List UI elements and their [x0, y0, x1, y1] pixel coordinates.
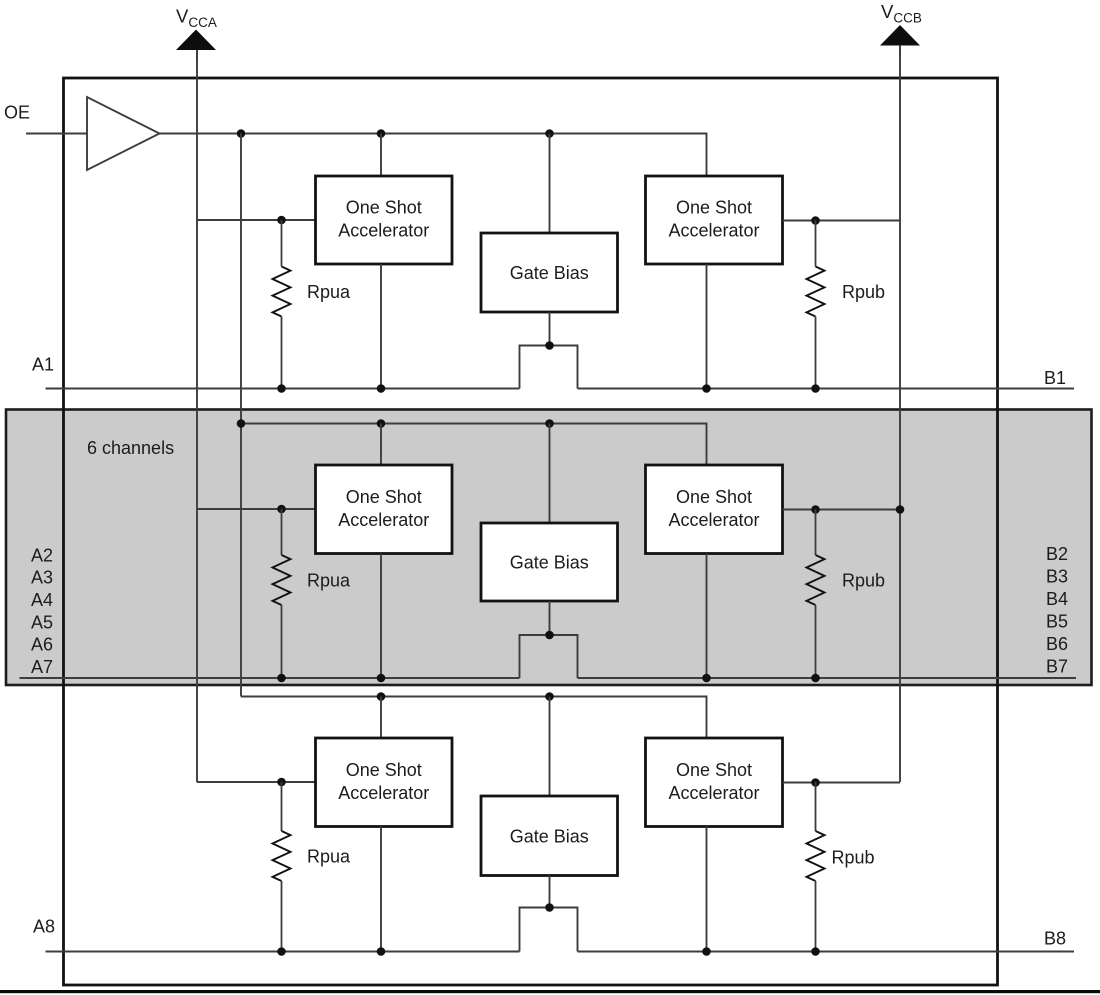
- svg-text:A8: A8: [33, 917, 55, 937]
- svg-text:A6: A6: [31, 635, 53, 655]
- svg-text:B6: B6: [1046, 634, 1068, 654]
- svg-text:B2: B2: [1046, 544, 1068, 564]
- svg-text:Accelerator: Accelerator: [338, 510, 429, 530]
- svg-text:Accelerator: Accelerator: [668, 783, 759, 803]
- svg-text:Gate Bias: Gate Bias: [510, 826, 589, 846]
- svg-text:Accelerator: Accelerator: [668, 221, 759, 241]
- svg-text:Rpub: Rpub: [842, 571, 885, 591]
- svg-text:A2: A2: [31, 546, 53, 566]
- svg-text:One Shot: One Shot: [676, 198, 752, 218]
- svg-text:6 channels: 6 channels: [87, 438, 174, 458]
- svg-text:Gate Bias: Gate Bias: [510, 553, 589, 573]
- svg-text:One Shot: One Shot: [346, 760, 422, 780]
- svg-text:OE: OE: [4, 103, 30, 123]
- svg-text:Rpub: Rpub: [832, 848, 875, 868]
- svg-text:Rpua: Rpua: [307, 571, 351, 591]
- svg-text:One Shot: One Shot: [676, 487, 752, 507]
- svg-text:A4: A4: [31, 590, 53, 610]
- svg-text:A5: A5: [31, 613, 53, 633]
- svg-text:B8: B8: [1044, 929, 1066, 949]
- svg-text:Accelerator: Accelerator: [338, 221, 429, 241]
- svg-text:B4: B4: [1046, 589, 1068, 609]
- svg-text:Rpua: Rpua: [307, 282, 351, 302]
- svg-text:Accelerator: Accelerator: [668, 510, 759, 530]
- svg-text:B7: B7: [1046, 657, 1068, 677]
- svg-text:One Shot: One Shot: [676, 760, 752, 780]
- svg-text:B1: B1: [1044, 368, 1066, 388]
- svg-text:A3: A3: [31, 568, 53, 588]
- svg-text:B5: B5: [1046, 612, 1068, 632]
- svg-text:Gate Bias: Gate Bias: [510, 263, 589, 283]
- svg-text:Rpua: Rpua: [307, 847, 351, 867]
- svg-text:One Shot: One Shot: [346, 487, 422, 507]
- svg-text:B3: B3: [1046, 567, 1068, 587]
- svg-text:A1: A1: [32, 355, 54, 375]
- svg-text:One Shot: One Shot: [346, 198, 422, 218]
- svg-text:A7: A7: [31, 657, 53, 677]
- svg-text:Accelerator: Accelerator: [338, 783, 429, 803]
- svg-text:Rpub: Rpub: [842, 282, 885, 302]
